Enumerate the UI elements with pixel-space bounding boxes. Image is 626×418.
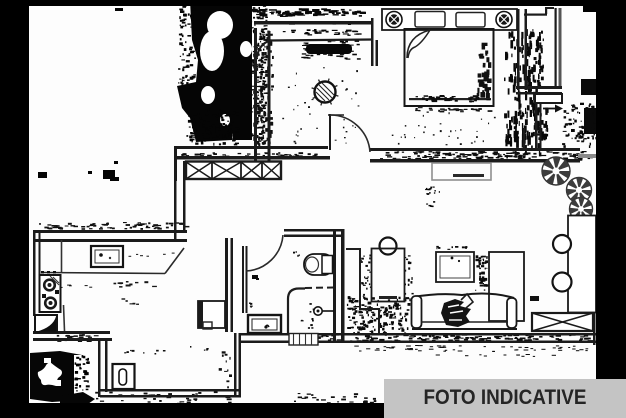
svg-text:FOTO INDICATIVE: FOTO INDICATIVE (424, 385, 587, 409)
